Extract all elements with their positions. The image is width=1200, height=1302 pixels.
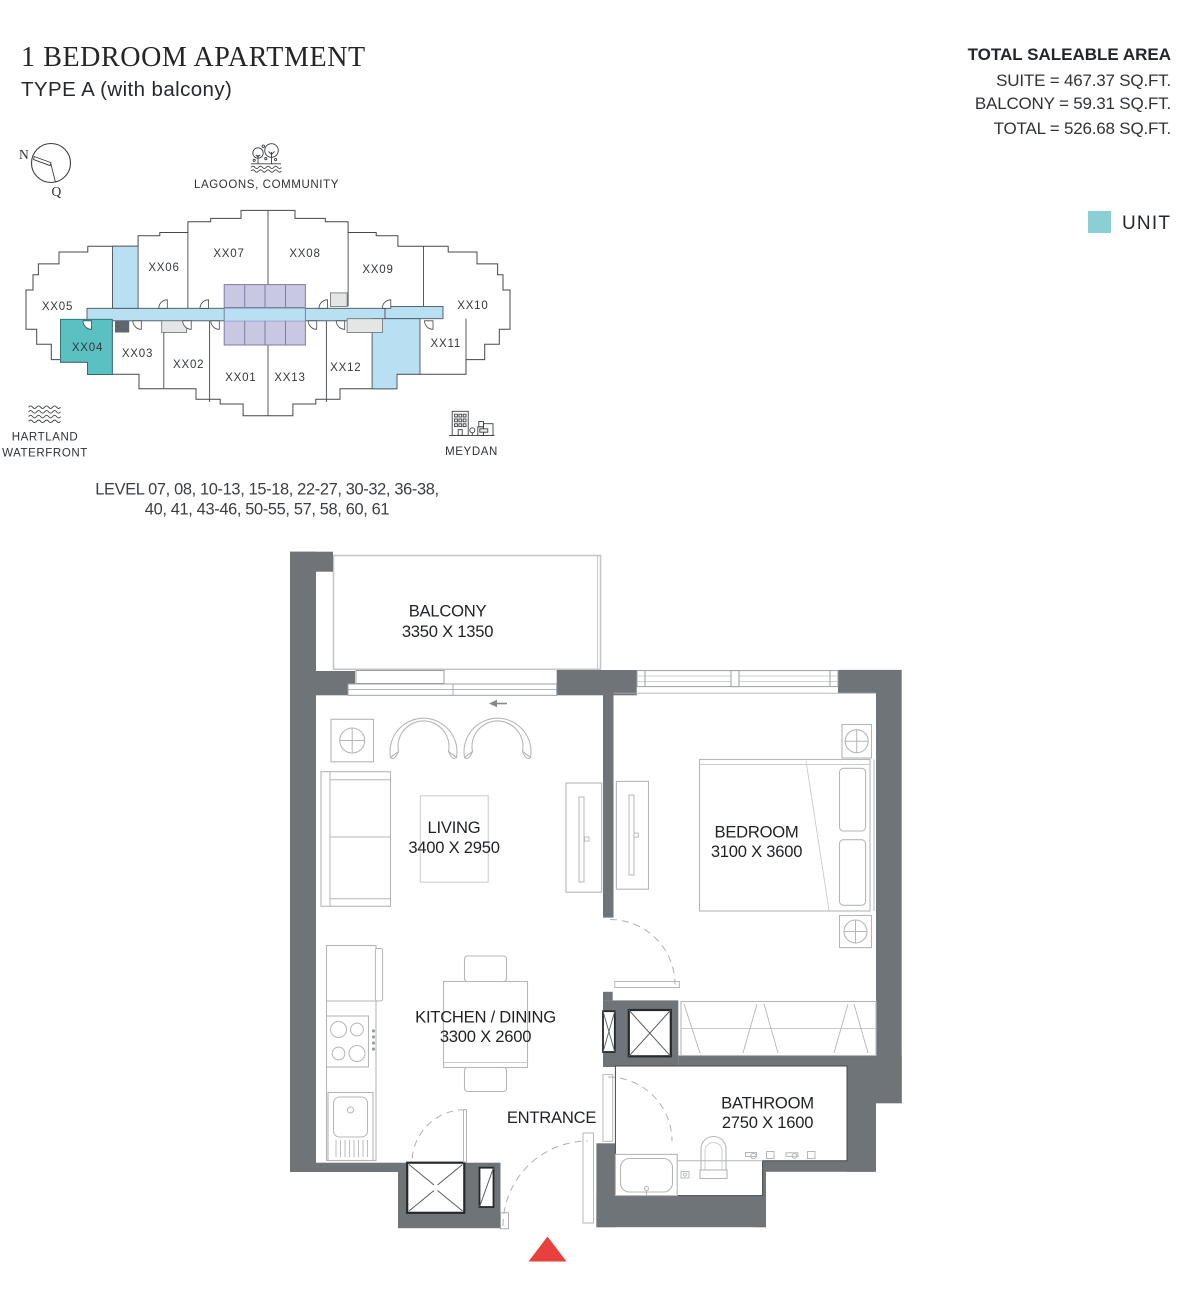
svg-text:Q: Q (52, 184, 62, 199)
svg-text:WATERFRONT: WATERFRONT (2, 448, 88, 460)
svg-text:XX02: XX02 (173, 359, 204, 371)
svg-text:XX07: XX07 (213, 248, 244, 260)
svg-text:BEDROOM: BEDROOM (715, 823, 799, 842)
svg-text:HARTLAND: HARTLAND (12, 432, 79, 444)
svg-text:BATHROOM: BATHROOM (721, 1094, 814, 1113)
svg-text:XX09: XX09 (362, 264, 393, 276)
svg-text:2750 X 1600: 2750 X 1600 (722, 1113, 813, 1132)
svg-text:XX04: XX04 (72, 342, 103, 354)
svg-text:N: N (19, 147, 29, 162)
svg-text:ENTRANCE: ENTRANCE (507, 1108, 596, 1127)
svg-text:1 BEDROOM APARTMENT: 1 BEDROOM APARTMENT (21, 42, 366, 73)
svg-text:LEVEL 07, 08, 10-13, 15-18, 22: LEVEL 07, 08, 10-13, 15-18, 22-27, 30-32… (95, 481, 438, 499)
svg-text:TOTAL = 526.68 SQ.FT.: TOTAL = 526.68 SQ.FT. (994, 119, 1171, 138)
svg-text:SUITE = 467.37 SQ.FT.: SUITE = 467.37 SQ.FT. (996, 71, 1171, 90)
svg-text:XX08: XX08 (289, 248, 320, 260)
svg-text:XX05: XX05 (42, 301, 73, 313)
svg-text:XX01: XX01 (225, 372, 256, 384)
svg-text:LAGOONS, COMMUNITY: LAGOONS, COMMUNITY (194, 179, 339, 191)
svg-text:MEYDAN: MEYDAN (445, 446, 498, 458)
svg-text:XX06: XX06 (148, 262, 179, 274)
svg-text:LIVING: LIVING (428, 818, 481, 837)
svg-text:XX12: XX12 (330, 362, 361, 374)
svg-text:3100 X 3600: 3100 X 3600 (711, 842, 802, 861)
svg-text:BALCONY = 59.31 SQ.FT.: BALCONY = 59.31 SQ.FT. (975, 94, 1171, 113)
svg-text:BALCONY: BALCONY (409, 602, 487, 621)
svg-text:XX03: XX03 (122, 348, 153, 360)
svg-text:TOTAL SALEABLE AREA: TOTAL SALEABLE AREA (968, 45, 1171, 64)
svg-text:3350 X 1350: 3350 X 1350 (402, 622, 493, 641)
svg-text:UNIT: UNIT (1122, 213, 1171, 234)
svg-text:40, 41, 43-46, 50-55, 57, 58,: 40, 41, 43-46, 50-55, 57, 58, 60, 61 (145, 501, 390, 519)
svg-text:KITCHEN / DINING: KITCHEN / DINING (415, 1008, 556, 1027)
svg-text:XX13: XX13 (274, 372, 305, 384)
svg-text:TYPE A (with balcony): TYPE A (with balcony) (21, 78, 232, 101)
svg-text:XX11: XX11 (431, 338, 461, 350)
svg-text:3300 X 2600: 3300 X 2600 (440, 1027, 531, 1046)
svg-text:3400 X 2950: 3400 X 2950 (408, 838, 499, 857)
svg-text:XX10: XX10 (457, 300, 488, 312)
